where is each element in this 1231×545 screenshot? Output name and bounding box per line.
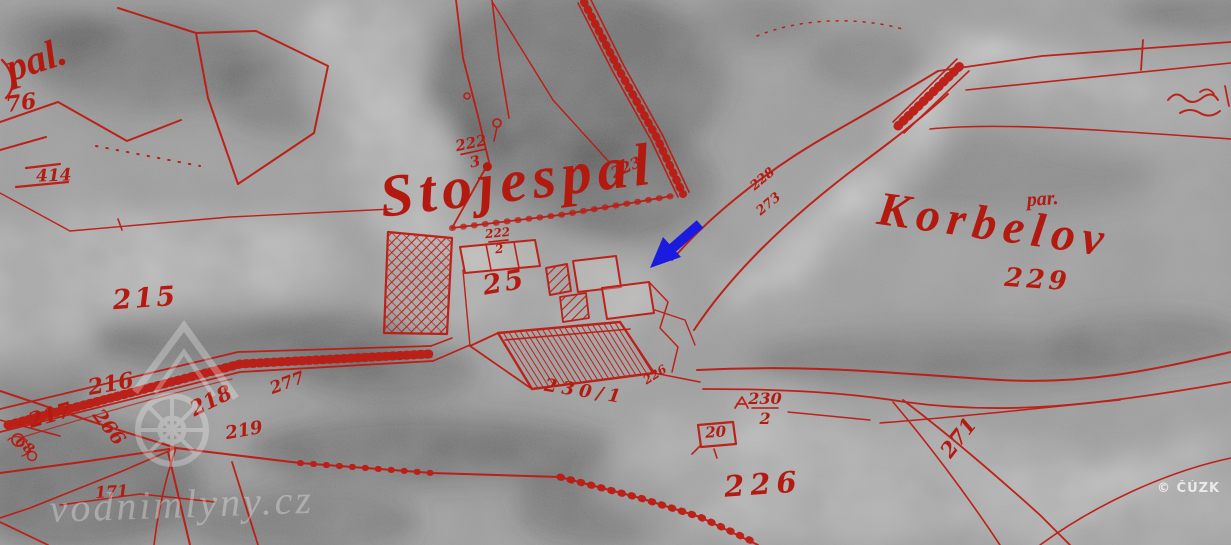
svg-text:2: 2 xyxy=(758,409,770,428)
svg-text:414: 414 xyxy=(36,165,72,186)
watermark-text: vodnimlyny.cz xyxy=(49,477,315,531)
svg-text:229: 229 xyxy=(1002,263,1071,298)
svg-text:226: 226 xyxy=(722,464,804,503)
svg-text:76: 76 xyxy=(4,88,38,118)
copyright-label: © ČÚZK xyxy=(1157,480,1220,496)
parcel-215: 215 xyxy=(111,281,179,317)
svg-text:par.: par. xyxy=(1024,187,1059,211)
parcel-229: 229 xyxy=(1002,263,1071,298)
parcel-76: 76 xyxy=(4,88,38,118)
parcel-414: 414 xyxy=(36,165,72,186)
parcel-226: 226 xyxy=(722,464,804,503)
svg-text:20: 20 xyxy=(704,422,728,442)
svg-text:222: 222 xyxy=(483,225,510,242)
svg-text:230: 230 xyxy=(747,389,781,408)
svg-text:2: 2 xyxy=(493,242,504,257)
svg-text:215: 215 xyxy=(111,281,179,317)
house-20: 20 xyxy=(704,422,728,442)
label-par: par. xyxy=(1024,187,1059,211)
map-viewport[interactable]: pal.7641421521621726621821968171277Stoje… xyxy=(0,0,1231,545)
